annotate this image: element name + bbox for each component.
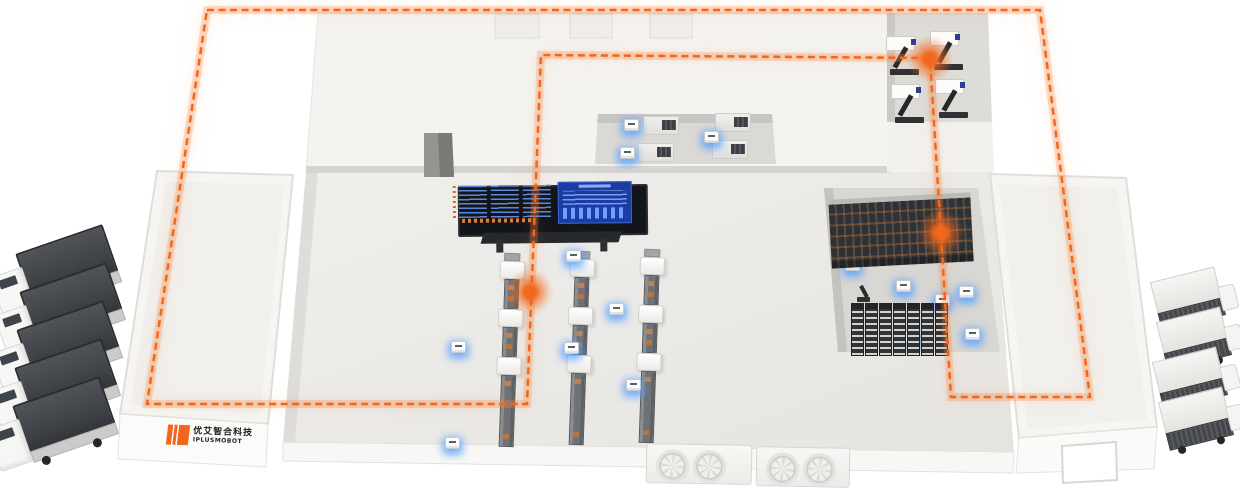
conveyor-item: [642, 430, 648, 435]
screen-side-leds: [453, 186, 456, 218]
wall-doorway-inner: [438, 133, 454, 177]
conveyor-item: [648, 281, 654, 286]
fan-icon: [803, 453, 837, 487]
agv-robot: [564, 342, 579, 354]
agv-sensor-slot: [449, 441, 456, 443]
machine-panel: [662, 120, 676, 130]
agv-robot: [620, 147, 635, 159]
dashboard-rows: [563, 190, 627, 205]
cnc-machine: [891, 84, 933, 126]
fan-icon: [656, 449, 690, 483]
conveyor-item: [506, 333, 512, 338]
line-machine: [636, 353, 662, 372]
line-machine: [567, 307, 593, 326]
machine-panel: [657, 147, 671, 157]
display-leg: [496, 240, 503, 253]
fan-icon: [693, 450, 727, 484]
screen-data-column: [523, 184, 551, 217]
line-machine: [566, 355, 592, 374]
conveyor-item: [506, 344, 512, 349]
conveyor-item: [578, 283, 584, 288]
agv-sensor-slot: [624, 151, 631, 153]
conveyor-item: [647, 292, 653, 297]
machine-base: [895, 117, 924, 123]
logo-mark-icon: [166, 425, 190, 446]
robot-arm-base: [857, 297, 870, 302]
conveyor-item: [504, 381, 510, 386]
route-node-assembly-line: [506, 268, 554, 316]
display-leg: [600, 238, 607, 251]
roof-vent: [495, 14, 539, 38]
agv-sensor-slot: [939, 298, 946, 300]
fan-icon: [766, 452, 800, 486]
line-machine: [496, 357, 522, 376]
rack-module: [935, 303, 948, 356]
agv-sensor-slot: [963, 290, 970, 292]
hvac-fan-unit: [646, 443, 753, 485]
agv-robot: [451, 341, 466, 353]
machine-base: [939, 112, 968, 118]
line-machine: [637, 305, 663, 324]
line-conveyor: [573, 277, 589, 308]
agv-sensor-slot: [630, 383, 637, 385]
conveyor-item: [574, 379, 580, 384]
dashboard-bar-chart: [563, 207, 627, 219]
corridor-machine: [643, 116, 679, 135]
cnc-machine: [935, 79, 977, 121]
roof-vent: [650, 14, 692, 38]
agv-robot: [626, 379, 641, 391]
rack-module: [907, 303, 920, 356]
logo-text: 优艾智合科技 IPLUSMOBOT: [193, 427, 254, 446]
screen-ticker-row: [462, 218, 534, 223]
rack-module: [893, 303, 906, 356]
agv-robot: [965, 328, 980, 340]
conveyor-item: [646, 329, 652, 334]
agv-robot: [609, 303, 624, 315]
agv-robot: [896, 280, 911, 292]
line-conveyor: [501, 327, 517, 358]
rack-module: [879, 303, 892, 356]
machine-accent: [960, 82, 965, 88]
conveyor-item: [646, 340, 652, 345]
upper-wall-shadow: [306, 166, 890, 173]
agv-sensor-slot: [900, 284, 907, 286]
route-node-rack-zone: [917, 209, 965, 257]
machine-accent: [955, 34, 960, 40]
machine-panel: [731, 144, 745, 154]
line-conveyor: [643, 275, 659, 306]
agv-robot: [445, 437, 460, 449]
conveyor-item: [577, 294, 583, 299]
company-logo: 优艾智合科技 IPLUSMOBOT: [167, 425, 254, 448]
corridor-machine: [638, 143, 674, 162]
conveyor-item: [502, 434, 508, 439]
corridor-machine: [715, 113, 751, 132]
rack-module: [865, 303, 878, 356]
route-node-machining-room: [906, 35, 954, 83]
agv-sensor-slot: [613, 307, 620, 309]
machine-panel: [734, 117, 748, 127]
screen-data-column: [491, 184, 519, 217]
agv-sensor-slot: [568, 346, 575, 348]
agv-sensor-slot: [969, 332, 976, 334]
agv-sensor-slot: [455, 345, 462, 347]
agv-robot: [704, 131, 719, 143]
agv-sensor-slot: [628, 123, 635, 125]
dashboard-title-bar: [579, 184, 611, 187]
agv-robot: [959, 286, 974, 298]
roof-vent: [570, 14, 612, 38]
rack-module: [851, 303, 864, 356]
line-machine: [639, 257, 665, 276]
line-conveyor: [641, 323, 657, 354]
conveyor-item: [644, 377, 650, 382]
right-annex-notch: [1062, 442, 1117, 483]
machining-room-south-wall: [887, 122, 994, 172]
screen-data-column: [459, 185, 487, 218]
line-conveyor: [568, 373, 586, 445]
screen-dashboard-panel: [558, 181, 632, 224]
agv-robot: [624, 119, 639, 131]
rack-module: [921, 303, 934, 356]
agv-sensor-slot: [708, 135, 715, 137]
factory-overview-illustration: 优艾智合科技 IPLUSMOBOT: [0, 0, 1240, 488]
machine-accent: [916, 87, 921, 93]
robot-arm: [856, 285, 872, 303]
conveyor-item: [576, 331, 582, 336]
line-conveyor: [498, 375, 516, 447]
production-display-board: [450, 178, 653, 256]
conveyor-item: [572, 432, 578, 437]
hvac-fan-unit: [756, 446, 851, 488]
